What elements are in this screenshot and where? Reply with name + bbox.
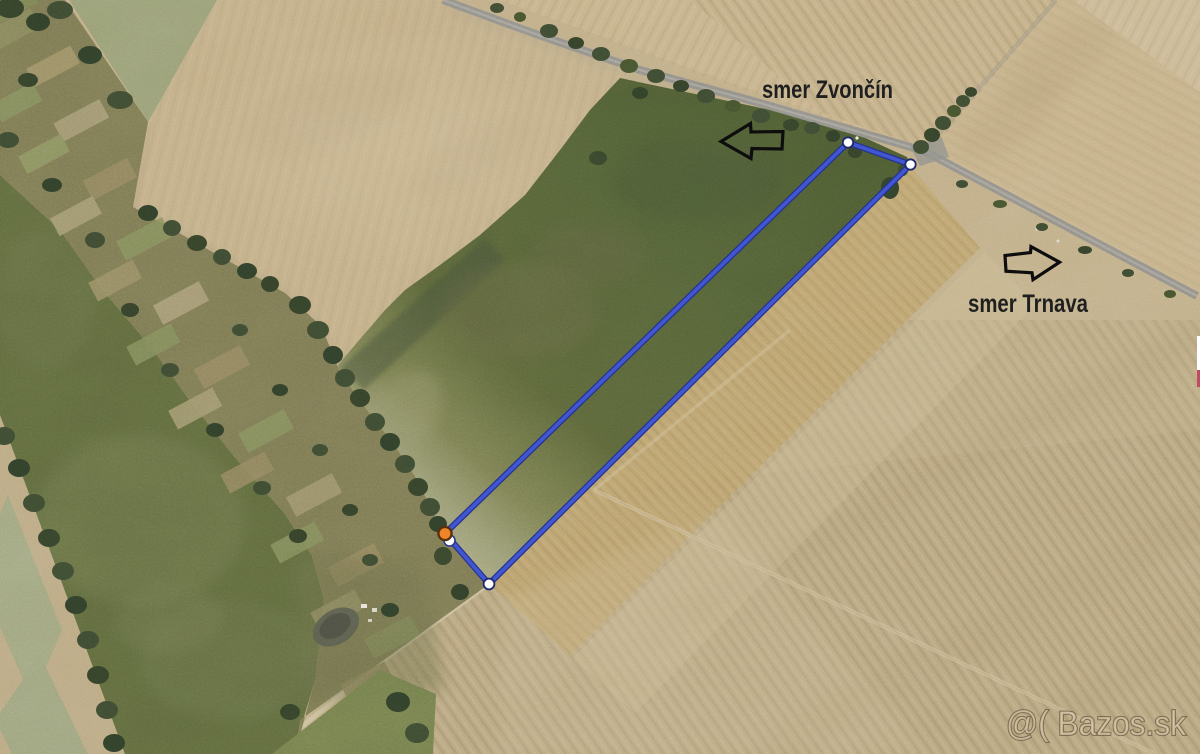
svg-text:@( Bazos.sk: @( Bazos.sk: [1006, 705, 1187, 743]
svg-text:smer Trnava: smer Trnava: [968, 290, 1089, 318]
svg-text:smer Zvončín: smer Zvončín: [762, 76, 893, 104]
